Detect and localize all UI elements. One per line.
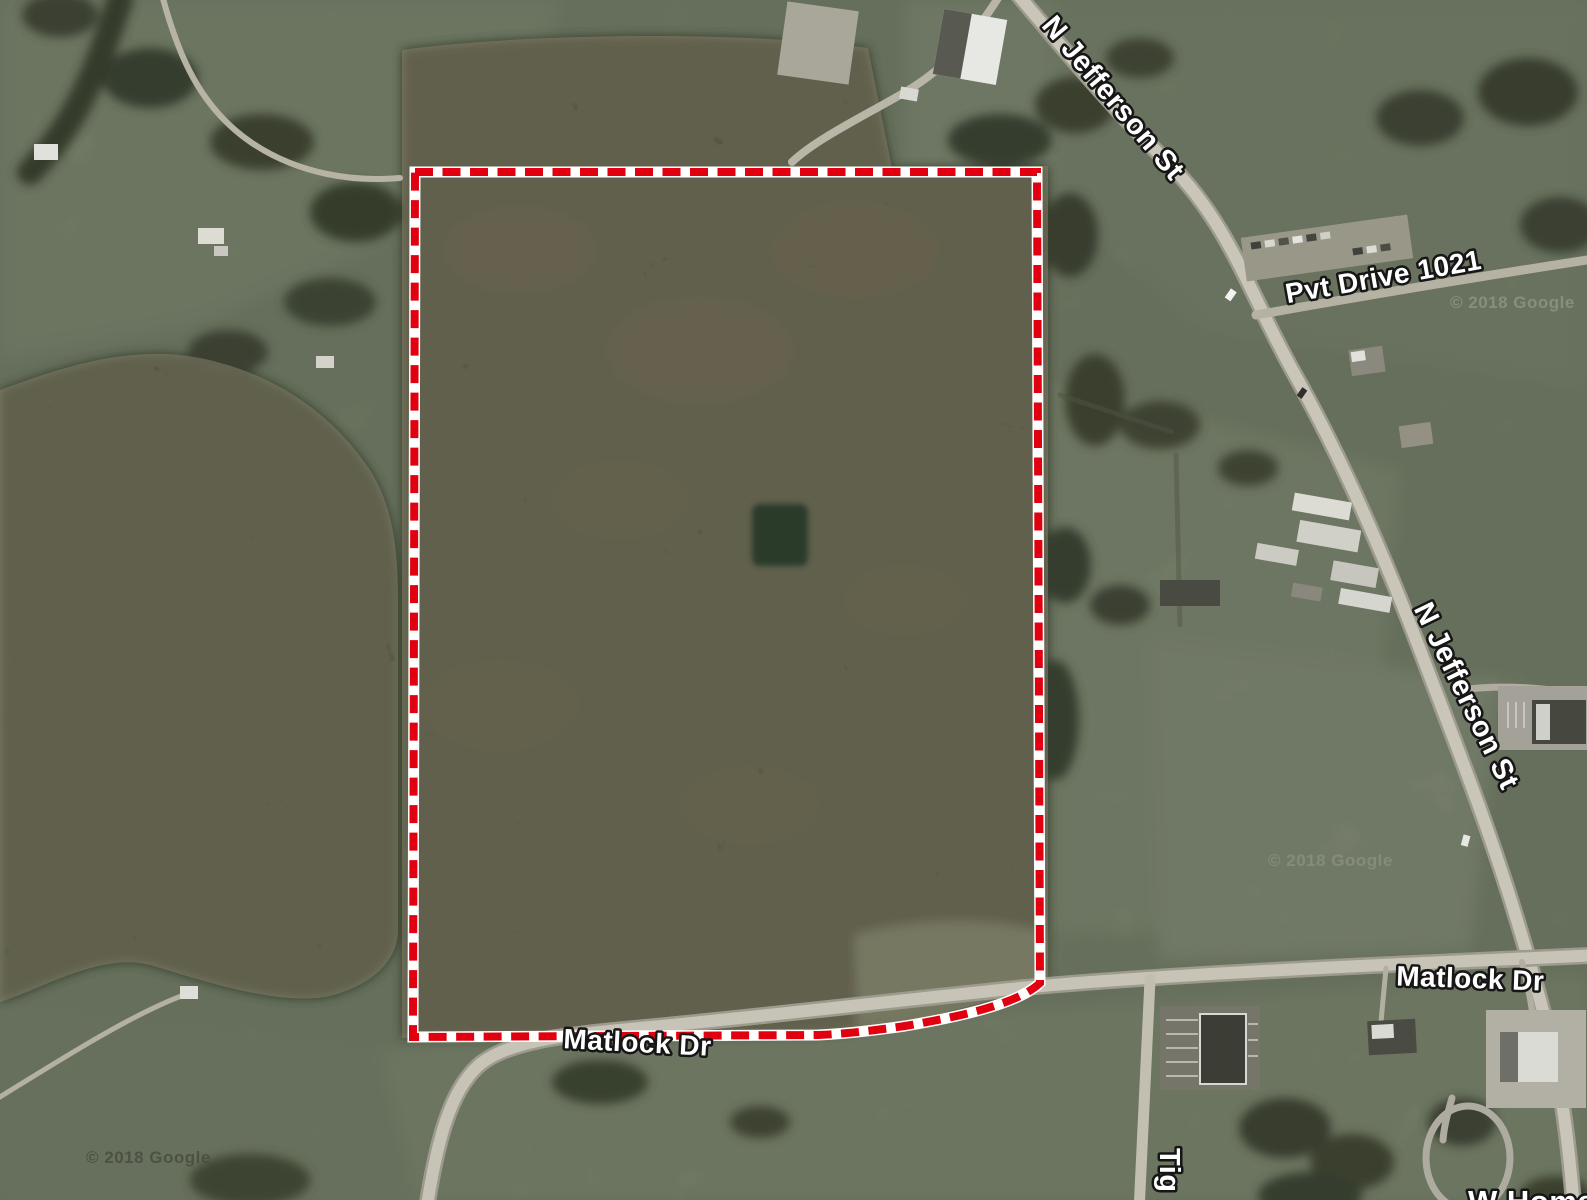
watermark-google-top-right: © 2018 Google: [1450, 293, 1575, 312]
building-church: [1498, 686, 1587, 750]
building: [1160, 580, 1220, 606]
building-facility: [933, 9, 1007, 85]
road-label-matlock-dr-right: Matlock Dr: [1396, 960, 1545, 996]
building-shed: [1486, 1010, 1586, 1108]
pond: [752, 504, 808, 566]
watermark-google-bottom-left: © 2018 Google: [86, 1148, 211, 1167]
satellite-map-canvas[interactable]: N Jefferson St N Jefferson St Pvt Drive …: [0, 0, 1587, 1200]
gravel-pad: [777, 1, 859, 84]
building-apartment: [1160, 1006, 1260, 1090]
watermark-google-mid-right: © 2018 Google: [1268, 851, 1393, 870]
building: [180, 986, 198, 999]
building: [198, 228, 224, 244]
road-label-tig-partial: Tig: [1153, 1148, 1185, 1192]
building: [1399, 422, 1434, 448]
road-label-w-home-partial: W Home: [1468, 1184, 1587, 1200]
building: [34, 144, 58, 160]
building: [316, 356, 334, 368]
